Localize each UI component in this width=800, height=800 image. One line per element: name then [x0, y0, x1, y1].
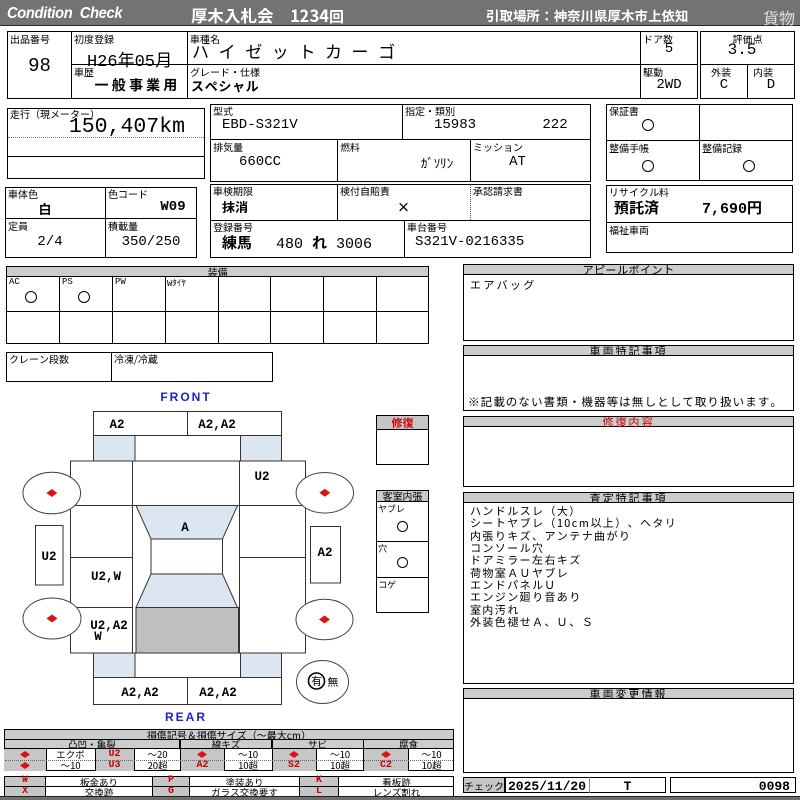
- svg-text:無: 無: [328, 674, 339, 690]
- svg-text:U2: U2: [41, 550, 56, 564]
- svg-text:A2: A2: [109, 418, 124, 432]
- svg-text:A2,A2: A2,A2: [198, 418, 236, 432]
- svg-text:U2,W: U2,W: [91, 570, 122, 584]
- svg-text:A2,A2: A2,A2: [121, 686, 159, 700]
- svg-text:U2: U2: [254, 470, 269, 484]
- svg-text:A2: A2: [317, 546, 332, 560]
- svg-text:A: A: [181, 521, 189, 535]
- svg-text:A2,A2: A2,A2: [199, 686, 237, 700]
- svg-text:W: W: [94, 630, 102, 644]
- svg-text:有: 有: [311, 673, 322, 689]
